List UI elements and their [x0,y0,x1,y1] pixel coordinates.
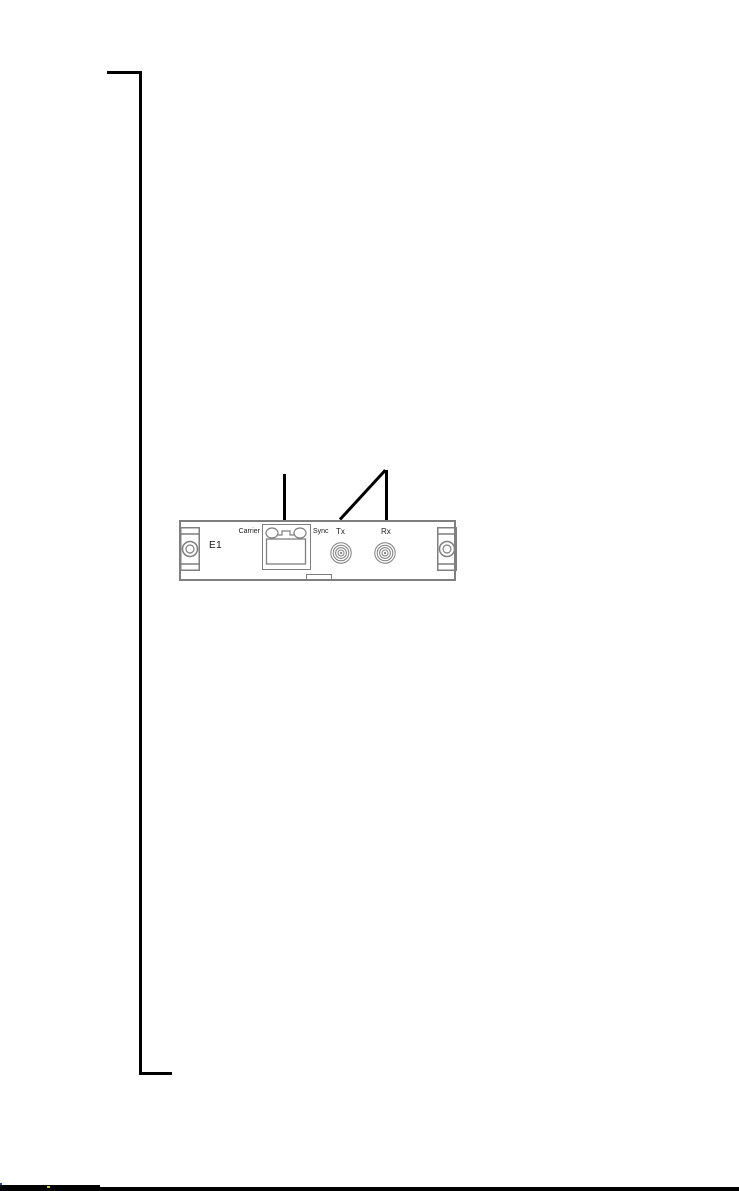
carrier-led-icon [266,528,278,538]
rx-coax-connector [373,541,397,565]
screw-mount-left [180,527,200,571]
sync-led-icon [294,528,306,538]
module-label: E1 [209,540,222,551]
screw-mount-right [437,527,457,571]
leader-line-rx-connector [385,470,388,520]
sync-led-label: Sync [313,528,329,536]
tx-coax-connector [329,541,353,565]
screw-icon [180,527,200,571]
coax-connector-icon [373,541,397,565]
carrier-led-label: Carrier [211,528,260,536]
tx-connector-label: Tx [336,528,345,536]
e1-module-front-panel: E1 Carrier Sync Tx Rx [179,520,456,581]
leader-line-rj45-port [283,474,286,520]
leader-line-tx-connector [339,469,387,520]
rj45-port [262,524,311,570]
panel-bottom-tab [306,574,332,579]
scanned-manual-page: E1 Carrier Sync Tx Rx [0,0,739,1191]
margin-bracket-bottom [139,1072,172,1075]
margin-bracket-top [107,71,142,74]
margin-bracket-vertical [139,71,142,1075]
scan-artifact-speck [0,1183,2,1185]
rx-connector-label: Rx [381,528,391,536]
footer-rule-left [0,1185,100,1191]
screw-icon [437,527,457,571]
footer-rule-right [100,1187,739,1191]
rj45-port-icon [263,525,309,568]
coax-connector-icon [329,541,353,565]
scan-artifact-speck [47,1186,50,1188]
